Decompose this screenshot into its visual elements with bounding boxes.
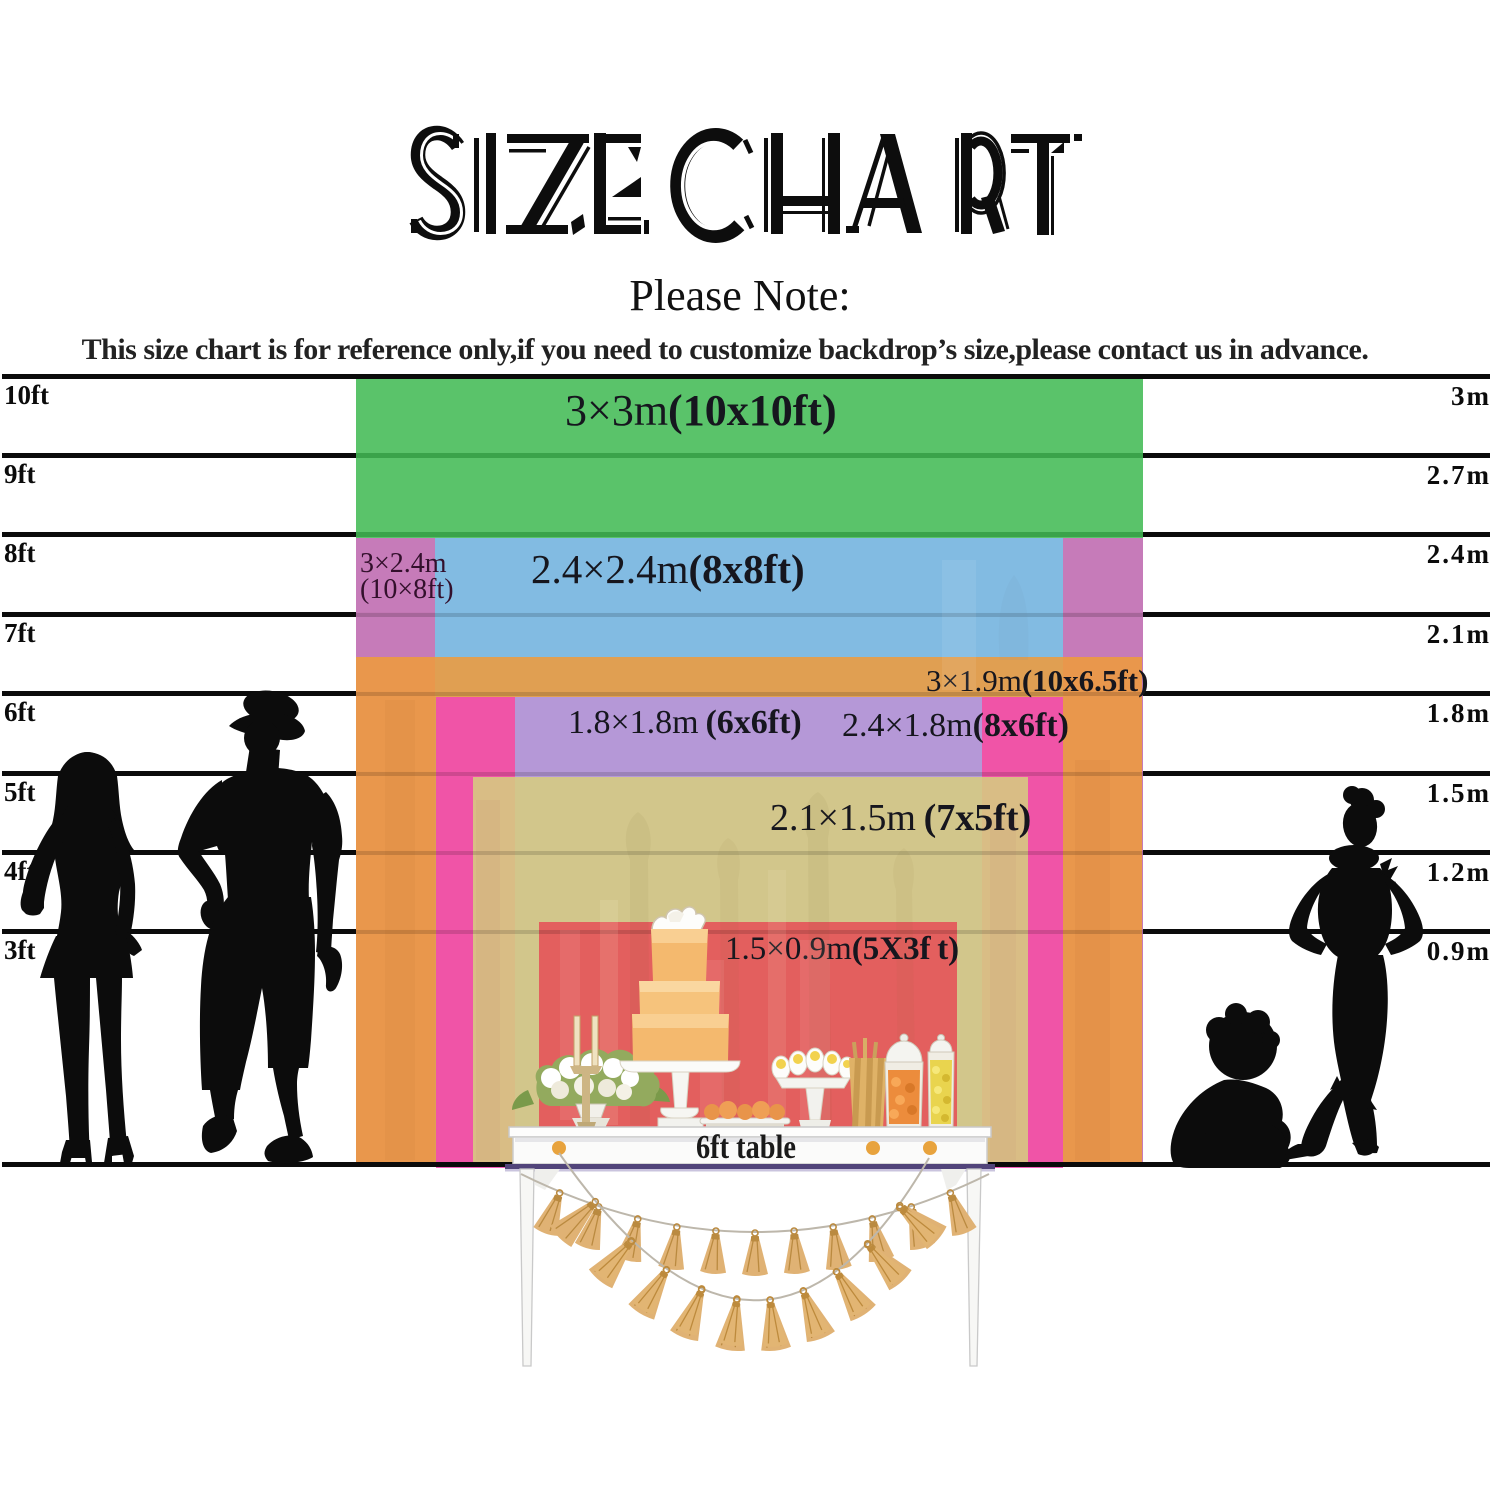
svg-text:6ft table: 6ft table [696, 1129, 796, 1166]
